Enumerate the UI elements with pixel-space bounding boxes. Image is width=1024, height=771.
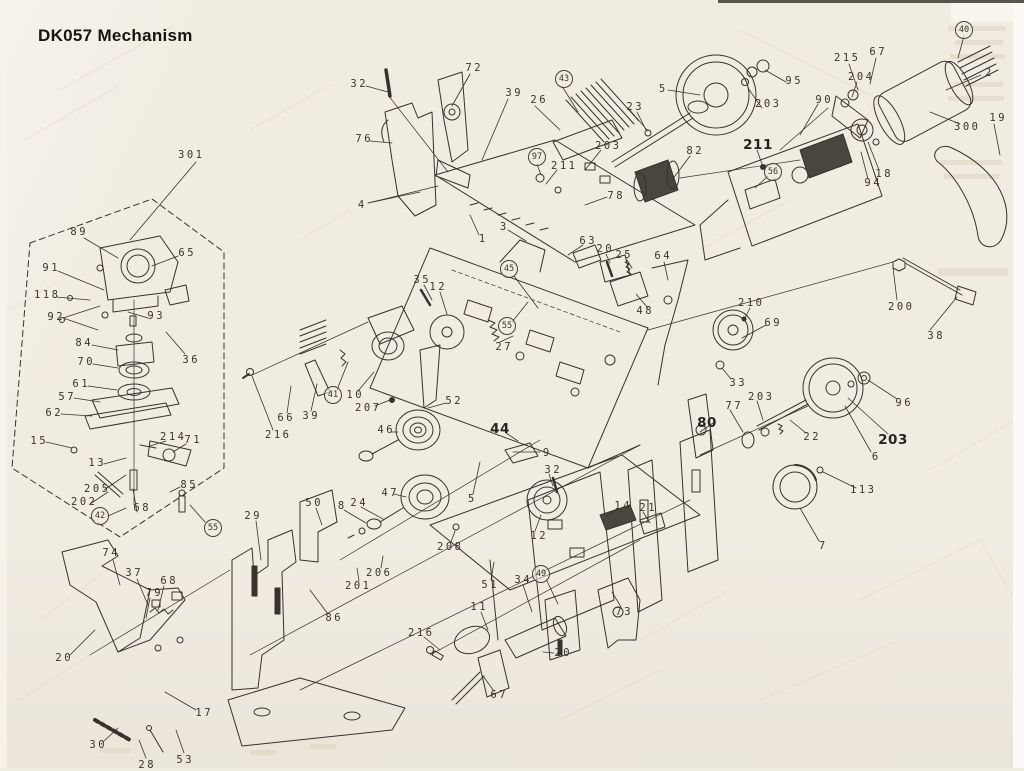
part-number-label: 19 bbox=[987, 112, 1007, 124]
part-number-label: 86 bbox=[323, 612, 343, 624]
part-number-label: 39 bbox=[503, 87, 523, 99]
part-number-label: 32 bbox=[542, 464, 562, 476]
part-number-label: 51 bbox=[479, 579, 499, 591]
part-number-label: 46 bbox=[375, 424, 395, 436]
part-number-label: 53 bbox=[174, 754, 194, 766]
part-number-label: 84 bbox=[73, 337, 93, 349]
part-number-label: 34 bbox=[512, 574, 532, 586]
part-number-label: 5 bbox=[656, 83, 667, 95]
part-labels-layer: 3018965911189293843670615762152147113205… bbox=[0, 0, 1024, 768]
part-number-label: 74 bbox=[100, 547, 120, 559]
part-number-label: 200 bbox=[886, 301, 915, 313]
part-number-label: 11 bbox=[468, 601, 488, 613]
part-number-label: 30 bbox=[87, 739, 107, 751]
part-number-label: 215 bbox=[832, 52, 861, 64]
part-number-label: 118 bbox=[32, 289, 61, 301]
part-number-label: 207 bbox=[353, 402, 382, 414]
part-number-label: 27 bbox=[493, 341, 513, 353]
part-number-label: 39 bbox=[300, 410, 320, 422]
part-number-label: 32 bbox=[348, 78, 368, 90]
part-number-label: 57 bbox=[56, 391, 76, 403]
part-number-label: 2 bbox=[982, 67, 993, 79]
part-number-label: 300 bbox=[952, 121, 981, 133]
part-number-label: 23 bbox=[624, 101, 644, 113]
part-number-label: 65 bbox=[176, 247, 196, 259]
part-number-label: 94 bbox=[862, 177, 882, 189]
part-number-label: 210 bbox=[736, 297, 765, 309]
part-number-label: 62 bbox=[43, 407, 63, 419]
part-number-label: 15 bbox=[28, 435, 48, 447]
part-number-label: 216 bbox=[406, 627, 435, 639]
part-number-label: 301 bbox=[176, 149, 205, 161]
part-number-label: 33 bbox=[727, 377, 747, 389]
part-number-label: 211 bbox=[549, 160, 578, 172]
part-number-label: 48 bbox=[634, 305, 654, 317]
part-number-label: 9 bbox=[540, 447, 551, 459]
part-number-label: 52 bbox=[443, 395, 463, 407]
part-number-label: 67 bbox=[488, 689, 508, 701]
part-number-label: 113 bbox=[848, 484, 877, 496]
part-number-label: 20 bbox=[594, 243, 614, 255]
part-number-label: 89 bbox=[68, 226, 88, 238]
part-number-label: 66 bbox=[275, 412, 295, 424]
part-number-label: 14 bbox=[612, 500, 632, 512]
part-number-label: 4 bbox=[355, 199, 366, 211]
circled-part-number: 55 bbox=[204, 519, 222, 537]
part-number-label: 95 bbox=[783, 75, 803, 87]
circled-part-number: 43 bbox=[555, 70, 573, 88]
part-number-label: 13 bbox=[86, 457, 106, 469]
part-number-label: 201 bbox=[343, 580, 372, 592]
circled-part-number: 55 bbox=[498, 317, 516, 335]
part-number-label: 203 bbox=[593, 140, 622, 152]
part-number-label: 96 bbox=[893, 397, 913, 409]
part-number-label: 17 bbox=[193, 707, 213, 719]
circled-part-number: 56 bbox=[764, 163, 782, 181]
part-number-label: 79 bbox=[143, 587, 163, 599]
part-number-label: 71 bbox=[182, 434, 202, 446]
part-number-label: 76 bbox=[353, 133, 373, 145]
part-number-label: 211 bbox=[743, 137, 773, 153]
part-number-label: 28 bbox=[136, 759, 156, 771]
part-number-label: 12 bbox=[427, 281, 447, 293]
part-number-label: 73 bbox=[613, 606, 633, 618]
part-number-label: 61 bbox=[70, 378, 90, 390]
circled-part-number: 49 bbox=[532, 565, 550, 583]
part-number-label: 203 bbox=[753, 98, 782, 110]
part-number-label: 202 bbox=[69, 496, 98, 508]
part-number-label: 205 bbox=[82, 483, 111, 495]
part-number-label: 1 bbox=[476, 233, 487, 245]
circled-part-number: 40 bbox=[955, 21, 973, 39]
part-number-label: 44 bbox=[490, 421, 510, 437]
part-number-label: 93 bbox=[145, 310, 165, 322]
part-number-label: 204 bbox=[846, 71, 875, 83]
part-number-label: 208 bbox=[435, 541, 464, 553]
circled-part-number: 41 bbox=[324, 386, 342, 404]
part-number-label: 37 bbox=[123, 567, 143, 579]
part-number-label: 24 bbox=[348, 497, 368, 509]
part-number-label: 47 bbox=[379, 487, 399, 499]
part-number-label: 70 bbox=[75, 356, 95, 368]
part-number-label: 10 bbox=[344, 389, 364, 401]
part-number-label: 92 bbox=[45, 311, 65, 323]
part-number-label: 36 bbox=[180, 354, 200, 366]
part-number-label: 7 bbox=[816, 540, 827, 552]
part-number-label: 20 bbox=[53, 652, 73, 664]
part-number-label: 3 bbox=[497, 221, 508, 233]
part-number-label: 64 bbox=[652, 250, 672, 262]
part-number-label: 6 bbox=[869, 451, 880, 463]
part-number-label: 80 bbox=[697, 415, 717, 431]
part-number-label: 21 bbox=[637, 502, 657, 514]
part-number-label: 69 bbox=[762, 317, 782, 329]
part-number-label: 68 bbox=[158, 575, 178, 587]
part-number-label: 91 bbox=[40, 262, 60, 274]
part-number-label: 67 bbox=[867, 46, 887, 58]
part-number-label: 5 bbox=[465, 493, 476, 505]
part-number-label: 90 bbox=[813, 94, 833, 106]
part-number-label: 216 bbox=[263, 429, 292, 441]
part-number-label: 25 bbox=[613, 249, 633, 261]
circled-part-number: 42 bbox=[91, 507, 109, 525]
part-number-label: 68 bbox=[131, 502, 151, 514]
part-number-label: 29 bbox=[242, 510, 262, 522]
part-number-label: 72 bbox=[463, 62, 483, 74]
part-number-label: 50 bbox=[303, 497, 323, 509]
part-number-label: 85 bbox=[178, 479, 198, 491]
part-number-label: 78 bbox=[605, 190, 625, 202]
circled-part-number: 97 bbox=[528, 148, 546, 166]
part-number-label: 206 bbox=[364, 567, 393, 579]
part-number-label: 77 bbox=[723, 400, 743, 412]
part-number-label: 203 bbox=[878, 432, 908, 448]
part-number-label: 12 bbox=[528, 530, 548, 542]
part-number-label: 82 bbox=[684, 145, 704, 157]
part-number-label: 203 bbox=[746, 391, 775, 403]
part-number-label: 38 bbox=[925, 330, 945, 342]
part-number-label: 8 bbox=[335, 500, 346, 512]
circled-part-number: 45 bbox=[500, 260, 518, 278]
part-number-label: 26 bbox=[528, 94, 548, 106]
part-number-label: 22 bbox=[801, 431, 821, 443]
part-number-label: 20 bbox=[552, 647, 572, 659]
